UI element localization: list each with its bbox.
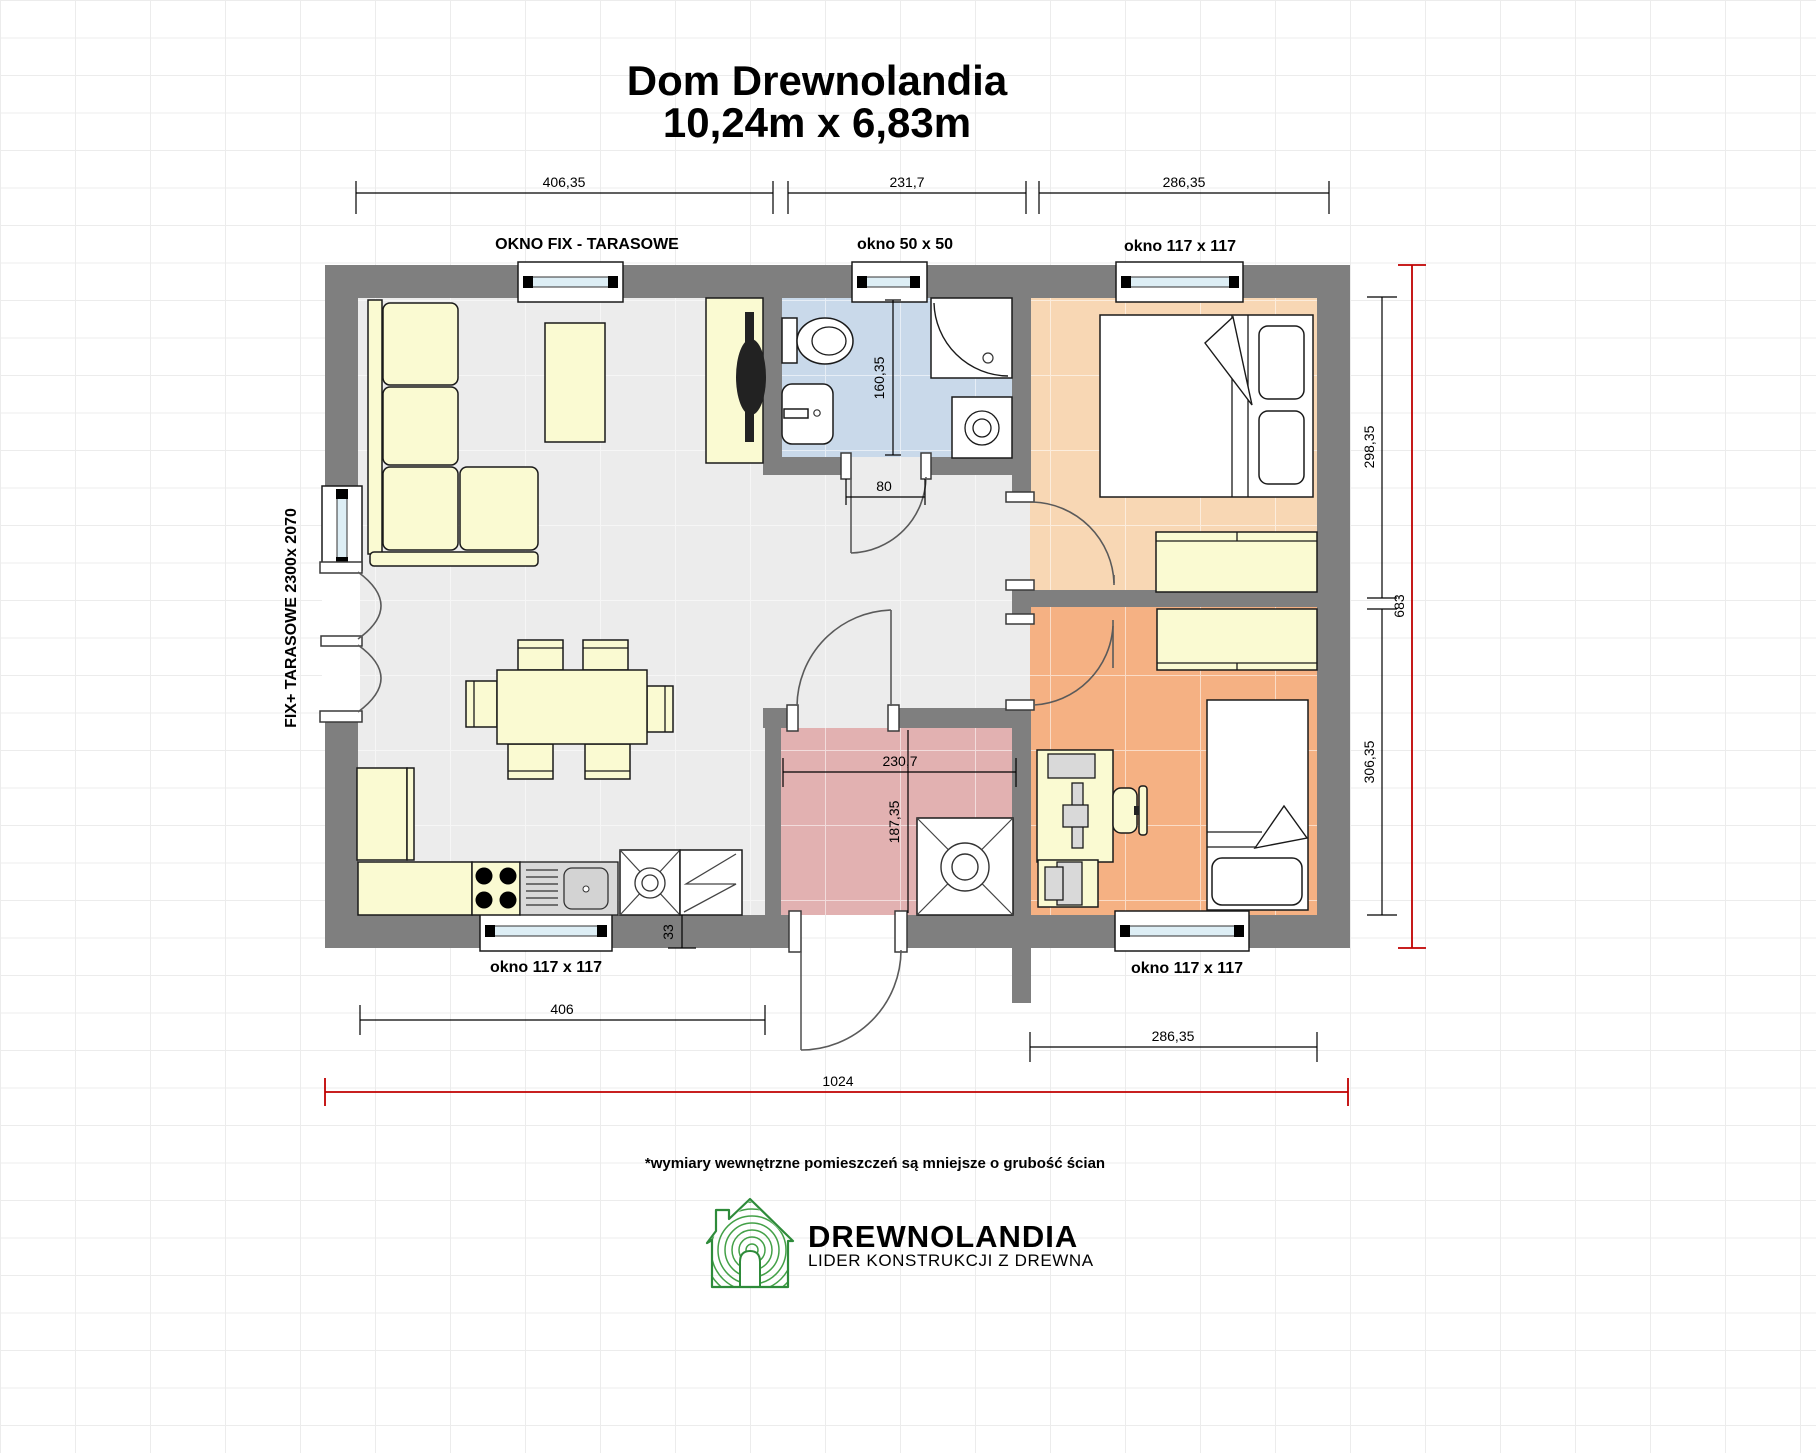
dining-chair [508, 744, 553, 779]
dining-table [497, 670, 647, 744]
hall-boiler [917, 818, 1013, 915]
svg-text:230,7: 230,7 [882, 753, 917, 769]
stove [472, 862, 520, 915]
window-top-right [1116, 262, 1243, 302]
svg-text:286,35: 286,35 [1163, 174, 1206, 190]
page-title: Dom Drewnolandia 10,24m x 6,83m [627, 57, 1008, 146]
svg-text:160,35: 160,35 [871, 356, 887, 399]
bathroom-south-wall-right [926, 457, 1013, 475]
label-okno-117-top: okno 117 x 117 [1124, 238, 1236, 255]
kitchen-tall-cabinet [357, 768, 407, 860]
wardrobe [1157, 609, 1317, 670]
logo-house-icon [704, 1199, 800, 1298]
window-bottom-left [480, 911, 612, 951]
label-okno-117-bottom-right: okno 117 x 117 [1131, 960, 1243, 977]
floor-plan-drawing: Dom Drewnolandia 10,24m x 6,83m [0, 0, 1816, 1453]
window-top-left [518, 262, 623, 302]
pillow [1212, 858, 1302, 905]
monitor [1048, 754, 1095, 778]
label-okno-117-bottom-left: okno 117 x 117 [490, 959, 602, 976]
svg-text:298,35: 298,35 [1361, 425, 1377, 468]
title-line1: Dom Drewnolandia [627, 57, 1008, 104]
bathroom-sink [782, 384, 833, 444]
svg-text:406: 406 [550, 1001, 574, 1017]
hall-north-wall-left [763, 708, 790, 728]
label-okno-50: okno 50 x 50 [857, 236, 953, 253]
svg-text:33: 33 [660, 924, 676, 940]
bathroom-west-wall [763, 298, 782, 475]
svg-text:306,35: 306,35 [1361, 740, 1377, 783]
pillow [1259, 411, 1304, 484]
svg-text:286,35: 286,35 [1152, 1028, 1195, 1044]
hall-north-wall-right [899, 708, 1013, 728]
pillow [1259, 326, 1304, 399]
dim-right: 298,35 306,35 683 [1361, 265, 1426, 948]
dim-top: 406,35 231,7 286,35 OKNO FIX - TARASOWE … [356, 174, 1329, 255]
dining-chair [583, 640, 628, 670]
appliance-boiler [620, 850, 680, 915]
svg-text:80: 80 [876, 478, 892, 494]
svg-text:683: 683 [1391, 594, 1407, 618]
title-line2: 10,24m x 6,83m [663, 99, 971, 146]
dining-chair [518, 640, 563, 670]
logo-tagline: LIDER KONSTRUKCJI Z DREWNA [808, 1251, 1094, 1270]
desk [1037, 750, 1113, 862]
desk-chair [1113, 786, 1147, 835]
label-okno-fix: OKNO FIX - TARASOWE [495, 236, 679, 253]
footnote: *wymiary wewnętrzne pomieszczeń są mniej… [645, 1155, 1105, 1172]
dining-chair [466, 681, 497, 727]
appliance-fridge [680, 850, 742, 915]
logo-name: DREWNOLANDIA [808, 1219, 1078, 1254]
kitchen-sink [520, 862, 618, 915]
floor-plan-sheet: Dom Drewnolandia 10,24m x 6,83m [0, 0, 1816, 1453]
coffee-table [545, 323, 605, 442]
single-bed [1207, 700, 1308, 910]
washing-machine [952, 397, 1012, 458]
shower [931, 298, 1012, 378]
divider-wall-lower [1012, 708, 1031, 948]
svg-text:231,7: 231,7 [889, 174, 924, 190]
hall-west-wall [765, 728, 781, 915]
dining-chair [647, 686, 673, 732]
entry-wall-stub [1012, 948, 1031, 1003]
svg-text:187,35: 187,35 [886, 800, 902, 843]
tv-stand [706, 298, 766, 463]
bathroom-south-wall-left [763, 457, 846, 475]
kitchen-counter [358, 862, 472, 915]
dining-chair [585, 744, 630, 779]
entrance-door [789, 911, 907, 1050]
toilet [782, 318, 853, 364]
label-fix-tarasowe: FIX+ TARASOWE 2300x 2070 [283, 508, 300, 728]
double-bed [1100, 315, 1313, 497]
logo: DREWNOLANDIA LIDER KONSTRUKCJI Z DREWNA [704, 1199, 1094, 1298]
window-top-middle [852, 262, 927, 302]
printer-cabinet [1038, 860, 1098, 907]
window-bottom-right [1115, 911, 1249, 951]
svg-text:1024: 1024 [822, 1073, 853, 1089]
window-left-fix [322, 486, 362, 570]
storage-bench [1156, 532, 1317, 592]
divider-wall-upper [1012, 298, 1031, 498]
svg-text:406,35: 406,35 [543, 174, 586, 190]
